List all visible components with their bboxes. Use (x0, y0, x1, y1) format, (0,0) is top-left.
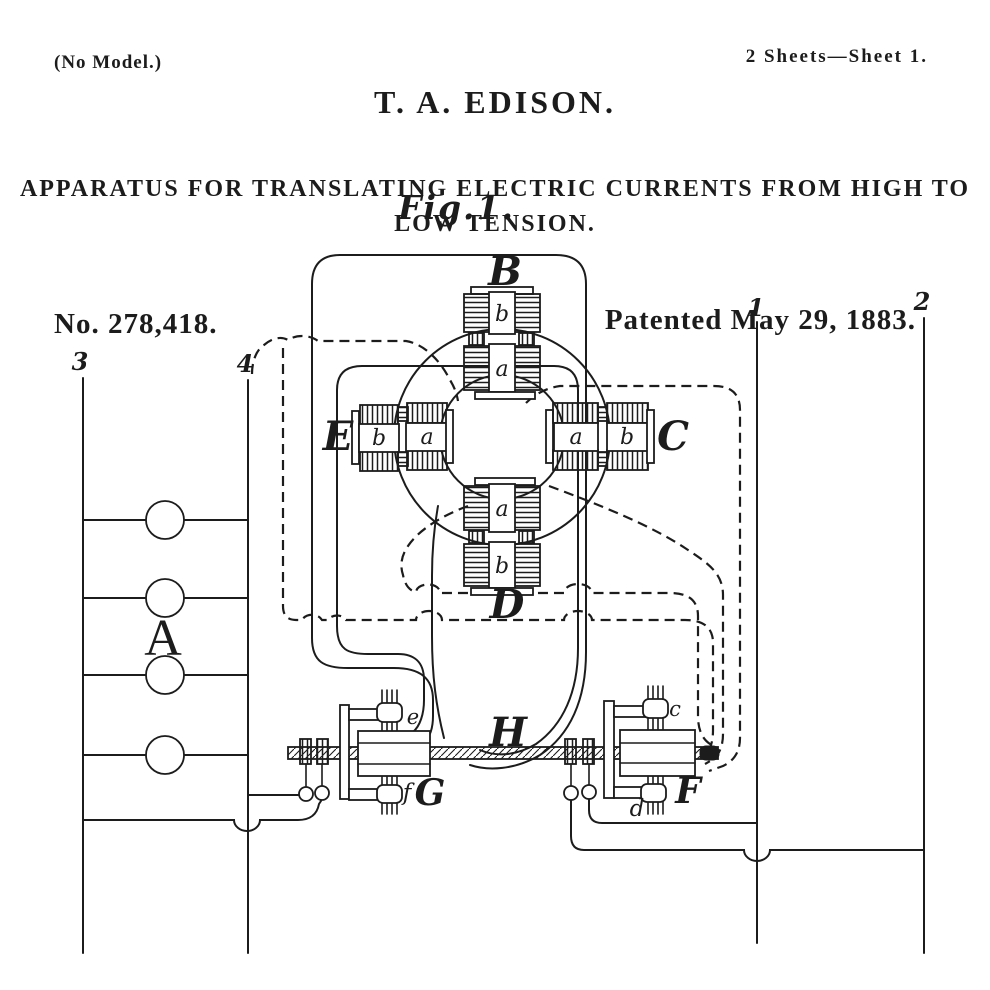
lamp-row-4 (83, 736, 248, 774)
f-brush-clamp-1 (565, 739, 576, 764)
g-terminal-1 (299, 787, 313, 801)
coil-assembly-b: b a (464, 287, 540, 399)
g-brush-stack-top (382, 690, 397, 703)
label-lamp-bank-a: A (144, 610, 182, 667)
label-b-secondary: b (495, 302, 509, 327)
coil-c-inner-plate (546, 410, 553, 463)
label-coil-c: C (657, 413, 689, 460)
g-brush-clamp-1 (300, 739, 311, 764)
label-wire-2: 2 (913, 287, 931, 316)
label-coil-d: D (489, 581, 525, 628)
g-drum (358, 731, 430, 776)
feeder-wire-3 (83, 801, 321, 831)
f-brush-c-block (643, 699, 668, 718)
label-d-primary: a (495, 497, 508, 522)
lamp-4 (146, 736, 184, 774)
label-brush-c: c (669, 697, 681, 721)
coil-assembly-e: b a (352, 403, 453, 471)
f-brush-stack-bottom (648, 802, 663, 814)
coil-assembly-d: a b (464, 478, 540, 595)
primary-loop-outer-left (312, 255, 433, 743)
g-terminal-2 (315, 786, 329, 800)
label-e-primary: a (420, 425, 433, 450)
coil-c-outer-plate (647, 410, 654, 463)
label-d-secondary: b (495, 554, 509, 579)
coil-b-inner-plate (475, 392, 535, 399)
label-coil-b: B (487, 248, 522, 295)
feeder-wire-1 (589, 799, 757, 823)
f-brush-stack-top (648, 686, 663, 699)
label-c-primary: a (569, 425, 582, 450)
f-brush-clamp-2 (583, 739, 594, 764)
label-c-secondary: b (620, 425, 634, 450)
label-brush-d: d (630, 796, 645, 822)
g-brush-f-block (377, 785, 402, 803)
label-shaft-h: H (488, 709, 528, 756)
label-brush-e: e (407, 705, 419, 729)
g-brush-clamp-2 (317, 739, 328, 764)
label-commutator-f: F (674, 770, 703, 812)
g-brush-e-block (377, 703, 402, 722)
feeder-wire-2 (571, 800, 924, 861)
label-wire-3: 3 (72, 347, 89, 376)
label-e-secondary: b (372, 426, 386, 451)
f-bracket (604, 701, 614, 798)
primary-loop-outer-right (340, 255, 586, 768)
coil-assembly-c: a b (546, 403, 654, 470)
g-bracket (340, 705, 349, 799)
primary-wires (312, 255, 586, 768)
secondary-from-c (549, 486, 723, 764)
label-coil-e: E (322, 413, 354, 460)
f-terminal-1 (564, 786, 578, 800)
f-brush-d-block (641, 784, 666, 802)
lamp-row-1 (83, 501, 248, 539)
label-wire-1: 1 (748, 293, 765, 322)
f-terminal-2 (582, 785, 596, 799)
label-commutator-g: G (415, 772, 446, 814)
label-wire-4: 4 (237, 349, 254, 378)
patent-sheet: (No Model.) 2 Sheets—Sheet 1. T. A. EDIS… (0, 0, 990, 990)
coil-e-inner-plate (446, 410, 453, 463)
lamp-bank (83, 378, 321, 953)
lamp-1 (146, 501, 184, 539)
f-arm-top (614, 706, 645, 717)
figure-1-drawing: b a a b (0, 0, 990, 990)
label-b-primary: a (495, 357, 508, 382)
label-brush-f: f (401, 780, 415, 806)
shaft-end-tip (700, 746, 719, 760)
